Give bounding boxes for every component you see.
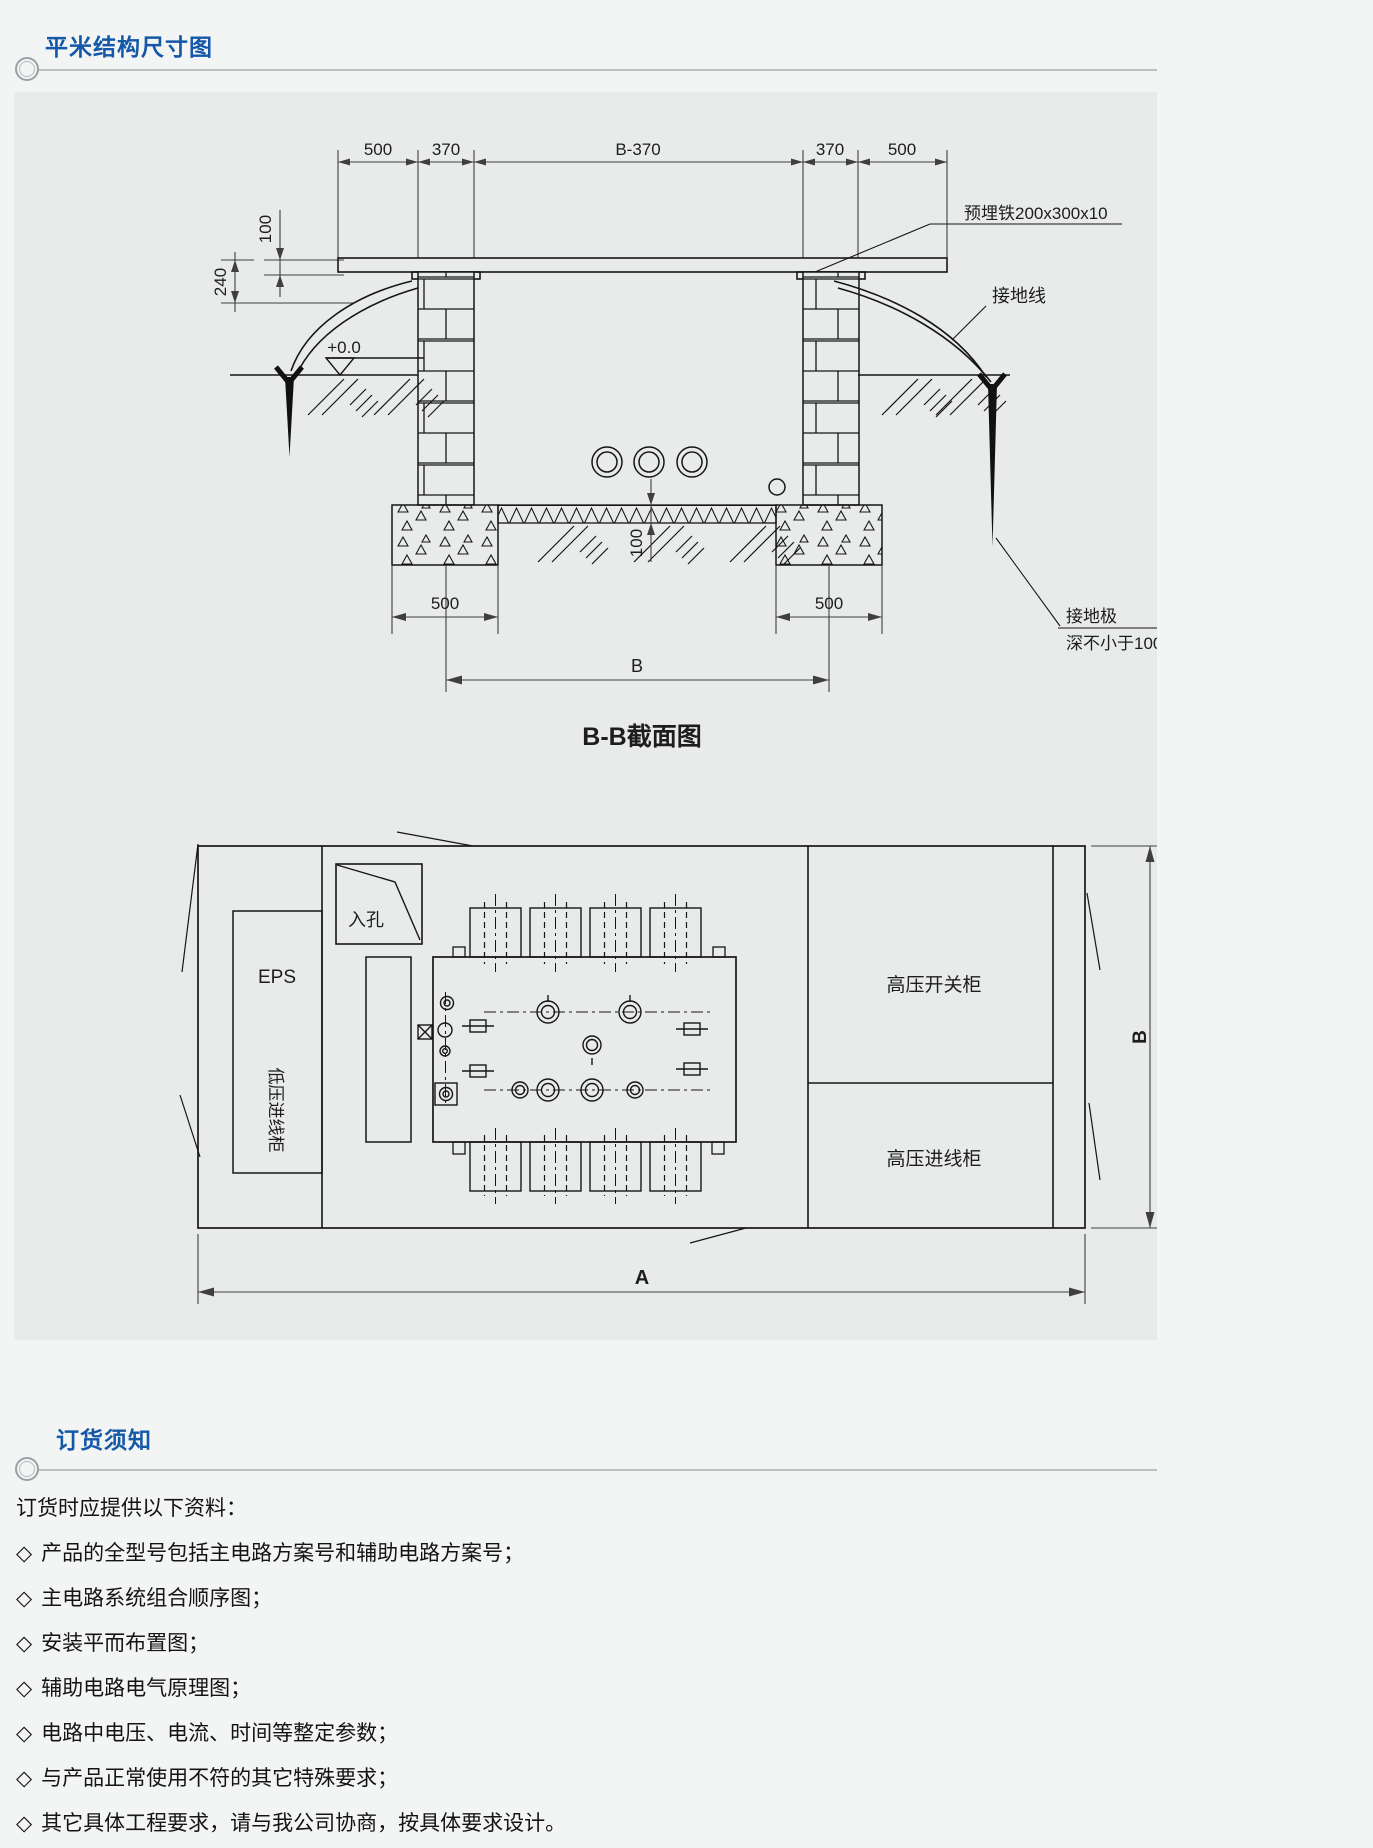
note-item-text: 产品的全型号包括主电路方案号和辅助电路方案号； [41, 1541, 524, 1567]
diamond-bullet-icon: ◇ [16, 1541, 32, 1567]
eps-label: EPS [258, 967, 296, 988]
note-item-text: 辅助电路电气原理图； [41, 1676, 251, 1702]
plan-dim-a: A [635, 1267, 649, 1289]
dim-left-240: 240 [211, 268, 230, 296]
note-item: ◇ 电路中电压、电流、时间等整定参数； [16, 1721, 1016, 1747]
plan-dim-b: B [1130, 1030, 1151, 1044]
dim-top-2: 370 [432, 140, 460, 159]
diamond-bullet-icon: ◇ [16, 1586, 32, 1612]
plan-view-drawing: EPS 低压进线柜 入孔 [180, 832, 1157, 1304]
note-item: ◇ 辅助电路电气原理图； [16, 1676, 1016, 1702]
floor-slab [498, 505, 776, 523]
ordering-notes: 订货时应提供以下资料： ◇ 产品的全型号包括主电路方案号和辅助电路方案号； ◇ … [16, 1496, 1016, 1837]
note-item-text: 与产品正常使用不符的其它特殊要求； [41, 1766, 398, 1792]
ground-rod-label: 接地极 [1066, 607, 1117, 626]
right-brick-wall [803, 272, 859, 505]
notes-intro-text: 订货时应提供以下资料： [16, 1496, 247, 1522]
header-divider-line [38, 69, 1157, 71]
ground-rod-depth-label: 深不小于1000 [1066, 634, 1157, 653]
note-item: ◇ 主电路系统组合顺序图； [16, 1586, 1016, 1612]
cable-pipes [592, 447, 785, 495]
ground-rod-left [276, 367, 302, 457]
ground-wire-left [291, 281, 418, 376]
header-circle-icon [15, 57, 39, 81]
note-item: ◇ 其它具体工程要求，请与我公司协商，按具体要求设计。 [16, 1811, 1016, 1837]
dim-foundation-left: 500 [431, 594, 459, 613]
foundation-left [392, 505, 498, 565]
dim-top-3: B-370 [615, 140, 660, 159]
diamond-bullet-icon: ◇ [16, 1631, 32, 1657]
ground-wire-leader [952, 306, 986, 340]
cross-section-caption: B-B截面图 [582, 723, 701, 751]
dim-foundation-right: 500 [815, 594, 843, 613]
notes-intro: 订货时应提供以下资料： [16, 1496, 1016, 1522]
note-item-text: 安装平而布置图； [41, 1631, 209, 1657]
diamond-bullet-icon: ◇ [16, 1676, 32, 1702]
top-dimension-chain [338, 150, 947, 258]
level-mark-label: +0.0 [327, 338, 361, 357]
hv-switchgear-label: 高压开关柜 [886, 974, 981, 996]
ordering-section-title: 订货须知 [56, 1421, 152, 1455]
ground-wire-label: 接地线 [992, 286, 1046, 306]
lv-incoming-label: 低压进线柜 [266, 1068, 285, 1153]
cross-section-drawing: 500 370 B-370 370 500 100 240 [211, 140, 1157, 751]
narrow-cabinet [366, 957, 411, 1142]
diamond-bullet-icon: ◇ [16, 1811, 32, 1837]
note-item-text: 其它具体工程要求，请与我公司协商，按具体要求设计。 [41, 1811, 566, 1837]
transformer [418, 894, 736, 1204]
dim-span-b: B [631, 656, 643, 676]
header-divider-line-2 [38, 1469, 1157, 1471]
note-item: ◇ 安装平而布置图； [16, 1631, 1016, 1657]
left-dimension-lines [221, 210, 354, 312]
dim-left-100: 100 [256, 215, 275, 243]
header-circle-icon-2 [15, 1457, 39, 1481]
left-brick-wall [418, 272, 474, 505]
dim-top-1: 500 [364, 140, 392, 159]
embedded-plate-leader [815, 224, 1122, 272]
diamond-bullet-icon: ◇ [16, 1766, 32, 1792]
manhole-label: 入孔 [348, 910, 384, 930]
dim-top-5: 500 [888, 140, 916, 159]
note-item: ◇ 产品的全型号包括主电路方案号和辅助电路方案号； [16, 1541, 1016, 1567]
note-item-text: 电路中电压、电流、时间等整定参数； [41, 1721, 398, 1747]
foundation-right [776, 505, 882, 565]
dim-floor-100: 100 [627, 529, 646, 557]
level-mark-icon [326, 358, 424, 375]
note-item-text: 主电路系统组合顺序图； [41, 1586, 272, 1612]
hv-incoming-label: 高压进线柜 [886, 1148, 981, 1170]
wall-break-marks [180, 832, 1100, 1243]
diamond-bullet-icon: ◇ [16, 1721, 32, 1747]
drawing-panel: 500 370 B-370 370 500 100 240 [14, 92, 1157, 1340]
embedded-plate-label: 预埋铁200x300x10 [964, 204, 1108, 223]
note-item: ◇ 与产品正常使用不符的其它特殊要求； [16, 1766, 1016, 1792]
structure-section-title: 平米结构尺寸图 [45, 28, 213, 62]
manhole [336, 864, 422, 944]
technical-drawing: 500 370 B-370 370 500 100 240 [14, 92, 1157, 1340]
dim-top-4: 370 [816, 140, 844, 159]
